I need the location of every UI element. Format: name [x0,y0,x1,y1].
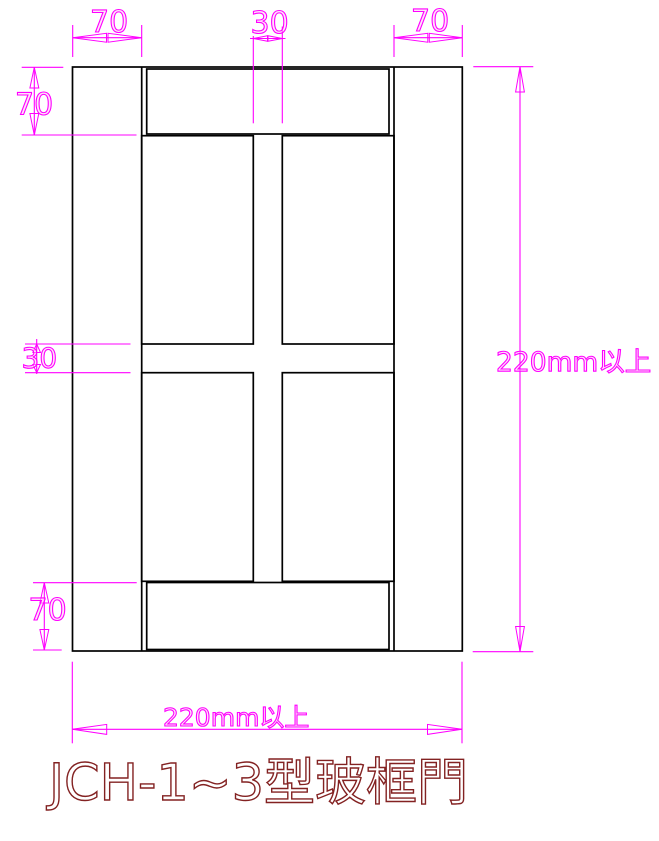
bottom-rail [147,583,389,650]
dim-top-right-stile-width: 70 [394,4,462,57]
door-geometry [73,67,463,651]
drawing-title: JCH-1~3型玻框門 [46,754,468,813]
dim-bottom-door-width: 220mm以上 [72,662,462,744]
glass-panel-bottom-left [142,373,254,582]
dim-top-mullion-width: 30 [250,6,289,123]
dim-left-bottom-rail-height: 70 [29,583,137,650]
dim-label: 70 [15,88,53,123]
top-rail [147,69,389,134]
dim-label: 220mm以上 [163,703,309,732]
dim-label: 70 [29,593,67,628]
dim-label: 30 [251,6,289,41]
dim-label: 220mm以上 [496,347,651,378]
glass-panel-top-left [142,136,254,344]
cad-canvas: 70 30 70 70 30 [0,0,659,841]
dim-top-left-stile-width: 70 [73,5,142,57]
dim-label: 30 [22,342,58,375]
dim-label: 70 [90,5,128,40]
door-drawing-svg: 70 30 70 70 30 [0,0,659,841]
dim-right-door-height: 220mm以上 [473,67,652,652]
glass-panel-bottom-right [282,373,394,582]
dim-label: 70 [411,4,449,39]
dim-left-mid-rail-height: 30 [22,339,131,375]
dim-left-top-rail-height: 70 [15,67,137,135]
door-outline [73,67,463,651]
glass-panel-top-right [282,136,394,344]
